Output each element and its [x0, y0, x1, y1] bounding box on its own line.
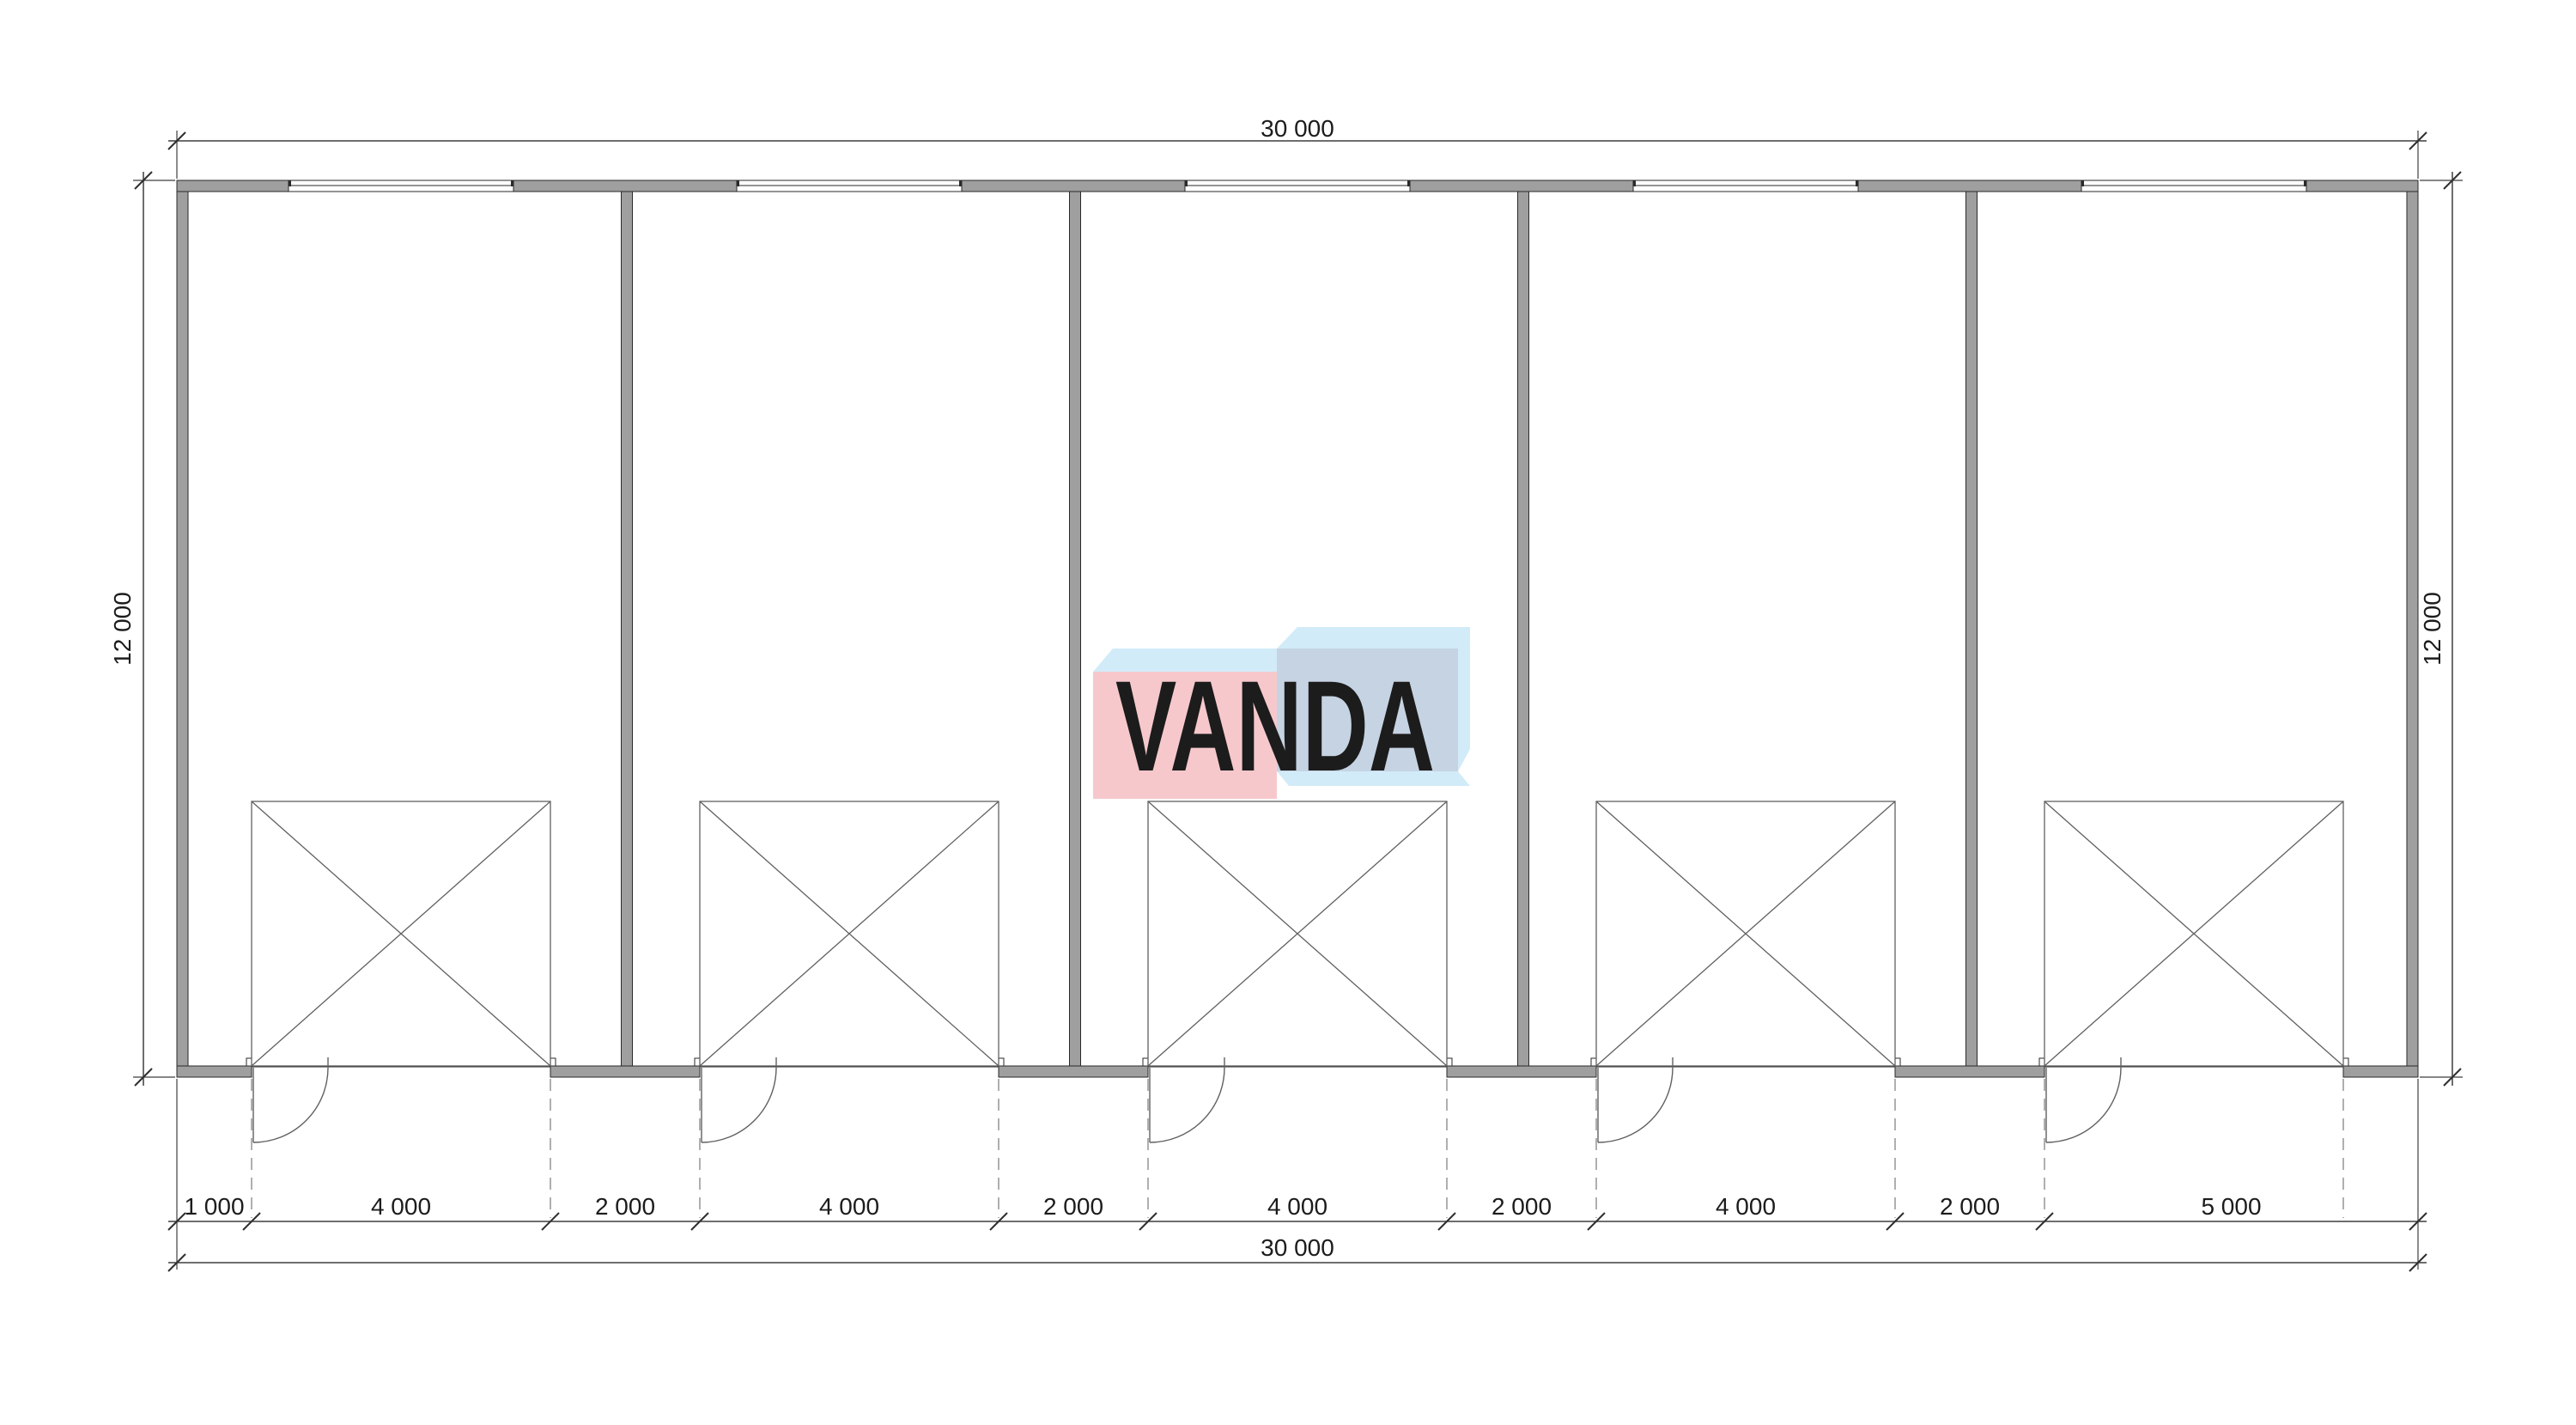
dimension-label-segment-4: 4 000 — [819, 1193, 879, 1220]
opening-jamb-notch — [1591, 1058, 1596, 1066]
dimension-label-segment-9: 2 000 — [1940, 1193, 2000, 1220]
dimension-label-segment-1: 1 000 — [184, 1193, 244, 1220]
floor-plan-svg: 1 0004 0002 0004 0002 0004 0002 0004 000… — [0, 0, 2576, 1425]
opening-jamb-notch — [695, 1058, 700, 1066]
floor-plan-sheet: 1 0004 0002 0004 0002 0004 0002 0004 000… — [0, 0, 2576, 1425]
outer-wall-left — [177, 180, 188, 1077]
dimension-bottom-segments: 1 0004 0002 0004 0002 0004 0002 0004 000… — [168, 1193, 2427, 1230]
window-4 — [1633, 180, 1858, 192]
outer-wall-top-segment — [513, 180, 737, 192]
window-5 — [2081, 180, 2306, 192]
logo-blue-box-top-face — [1277, 627, 1470, 649]
window-jamb-mark — [1407, 180, 1410, 186]
door-swings-layer — [253, 1057, 2121, 1142]
outer-wall-bottom-segment — [1895, 1066, 2044, 1077]
dimension-label-segment-8: 4 000 — [1716, 1193, 1776, 1220]
outer-wall-bottom-segment — [999, 1066, 1148, 1077]
logo-wordmark: VANDA — [1115, 654, 1435, 798]
door-swing-arc — [1150, 1068, 1224, 1142]
window-jamb-mark — [1856, 180, 1858, 186]
door-swing-2 — [702, 1057, 776, 1142]
door-swing-1 — [253, 1057, 328, 1142]
outer-wall-top-segment — [177, 180, 289, 192]
dimension-label-segment-6: 4 000 — [1267, 1193, 1327, 1220]
window-jamb-mark — [1633, 180, 1636, 186]
gate-symbol-1 — [252, 801, 550, 1066]
dimension-label-top-total: 30 000 — [1261, 115, 1334, 142]
opening-jamb-notch — [246, 1058, 252, 1066]
opening-jamb-notch — [1447, 1058, 1452, 1066]
opening-jamb-notch — [1895, 1058, 1900, 1066]
interior-wall-4 — [1966, 191, 1978, 1067]
opening-jamb-notch — [999, 1058, 1004, 1066]
opening-jamb-notch — [550, 1058, 556, 1066]
vanda-logo: VANDA — [1093, 627, 1470, 799]
door-swing-arc — [253, 1068, 328, 1142]
gate-symbols-layer — [252, 801, 2343, 1066]
interior-wall-3 — [1518, 191, 1529, 1067]
outer-wall-bottom-segment — [177, 1066, 252, 1077]
window-jamb-mark — [737, 180, 739, 186]
window-jamb-mark — [2081, 180, 2084, 186]
dimension-label-segment-2: 4 000 — [371, 1193, 431, 1220]
outer-wall-right — [2407, 180, 2418, 1077]
window-jamb-mark — [2304, 180, 2306, 186]
logo-blue-box-right-face — [1458, 627, 1470, 771]
dimension-left-overall — [133, 172, 175, 1086]
outer-wall-bottom-segment — [1447, 1066, 1596, 1077]
gate-symbol-3 — [1148, 801, 1447, 1066]
window-2 — [737, 180, 962, 192]
interior-wall-1 — [622, 191, 633, 1067]
dimension-label-segment-7: 2 000 — [1492, 1193, 1552, 1220]
dimension-label-segment-5: 2 000 — [1043, 1193, 1103, 1220]
outer-wall-top-segment — [962, 180, 1185, 192]
outer-wall-top-segment — [2306, 180, 2418, 192]
gate-symbol-2 — [700, 801, 999, 1066]
door-swing-arc — [1598, 1068, 1673, 1142]
window-jamb-mark — [1185, 180, 1188, 186]
dimension-label-segment-3: 2 000 — [595, 1193, 655, 1220]
dimension-label-right-height: 12 000 — [2419, 592, 2445, 666]
door-swing-4 — [1598, 1057, 1673, 1142]
outer-wall-top-segment — [1410, 180, 1633, 192]
gate-symbol-4 — [1596, 801, 1895, 1066]
window-jamb-mark — [289, 180, 291, 186]
outer-wall-bottom-segment — [550, 1066, 700, 1077]
opening-jamb-notch — [2039, 1058, 2044, 1066]
door-swing-5 — [2046, 1057, 2121, 1142]
dimension-label-bottom-total: 30 000 — [1261, 1234, 1334, 1261]
gate-symbol-5 — [2044, 801, 2343, 1066]
window-3 — [1185, 180, 1410, 192]
window-jamb-mark — [511, 180, 513, 186]
outer-wall-top-segment — [1858, 180, 2081, 192]
door-swing-arc — [2046, 1068, 2121, 1142]
outer-wall-bottom-segment — [2343, 1066, 2418, 1077]
dimension-label-segment-10: 5 000 — [2201, 1193, 2261, 1220]
dimension-label-left-height: 12 000 — [109, 592, 136, 666]
opening-jamb-notch — [1143, 1058, 1148, 1066]
opening-jamb-notch — [2343, 1058, 2348, 1066]
window-jamb-mark — [959, 180, 962, 186]
window-1 — [289, 180, 513, 192]
interior-wall-2 — [1070, 191, 1081, 1067]
door-swing-arc — [702, 1068, 776, 1142]
door-swing-3 — [1150, 1057, 1224, 1142]
